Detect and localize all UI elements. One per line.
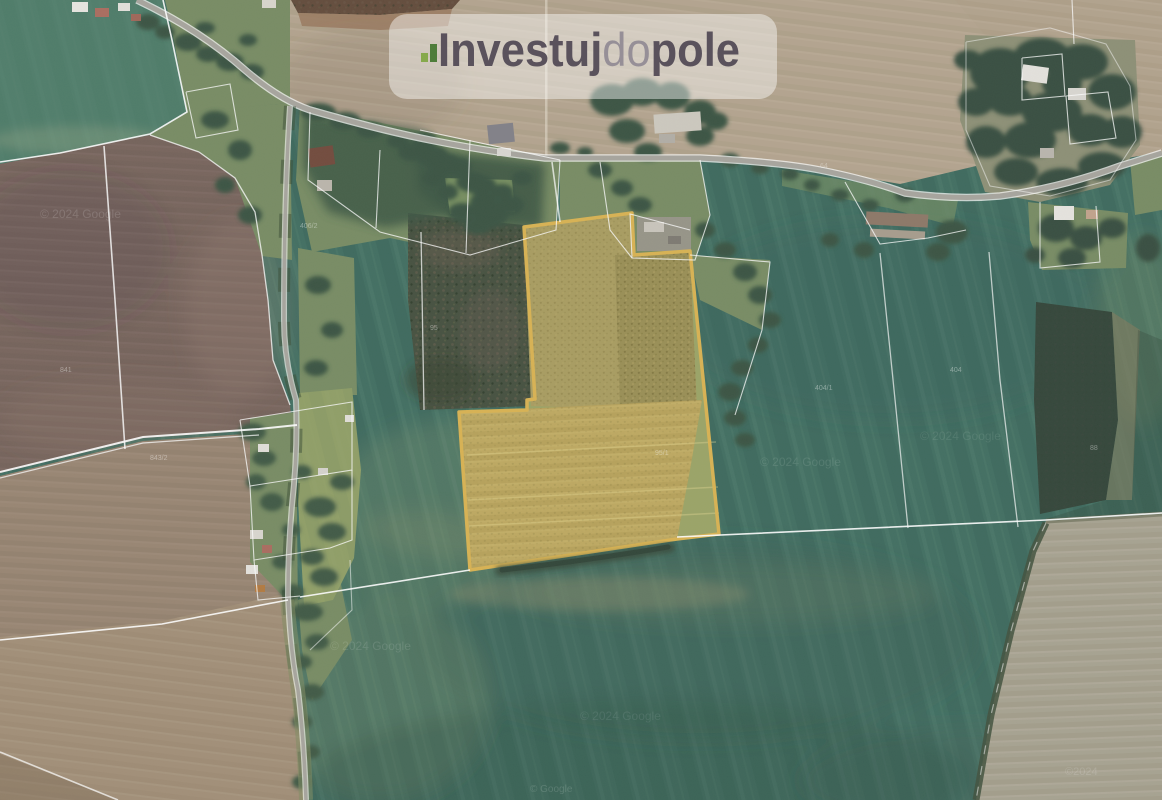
svg-text:Investujdopole: Investujdopole bbox=[438, 23, 740, 76]
